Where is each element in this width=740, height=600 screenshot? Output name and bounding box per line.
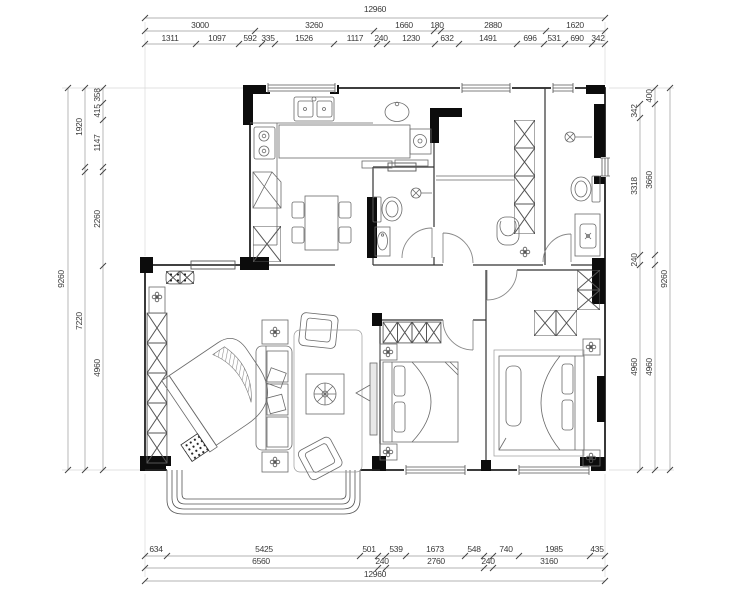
dim-label: 1097 [208,33,226,43]
bathroom1-fixtures [373,188,432,256]
dim-label: 1673 [426,544,444,554]
dim-label: 1660 [395,20,413,30]
dim-label: 4960 [92,359,102,377]
dim-label: 240 [481,556,494,566]
dim-label: 2880 [484,20,502,30]
dim-label: 2260 [92,210,102,228]
dim-label: 3318 [629,177,639,195]
dim-label: 3660 [644,171,654,189]
dim-label: 1985 [545,544,563,554]
dimension-lines [68,18,670,581]
dim-label: 240 [629,253,639,266]
grand-piano [145,331,283,463]
floor-plan-drawing [0,0,740,600]
furniture [145,97,600,481]
bedroom2-fixtures [494,270,600,466]
dim-label: 531 [547,33,560,43]
dim-label: 4960 [629,358,639,376]
dim-label: 3260 [305,20,323,30]
dim-label: 9260 [659,270,669,288]
dim-label: 501 [362,544,375,554]
dim-label: 1491 [479,33,497,43]
dim-label: 696 [523,33,536,43]
dim-label: 240 [375,556,388,566]
living-room-fixtures [145,271,377,481]
dim-label: 1620 [566,20,584,30]
dimension-ticks [65,15,673,584]
middle-room-fixtures [436,120,535,257]
dim-label: 2760 [427,556,445,566]
dim-label: 6560 [252,556,270,566]
dim-label: 1311 [161,33,178,43]
dim-label: 342 [591,33,604,43]
dim-label: 240 [374,33,387,43]
dim-label: 1147 [92,134,102,151]
dim-label: 12960 [364,4,386,14]
dim-label: 634 [149,544,162,554]
dim-label: 358 [92,88,102,101]
dim-label: 415 [92,104,102,117]
dim-label: 592 [243,33,256,43]
dim-label: 3160 [540,556,558,566]
dim-label: 1117 [347,33,363,43]
floor-plan-page: 12960 3000 3260 1660 180 2880 1620 1311 … [0,0,740,600]
dim-label: 1230 [402,33,420,43]
kitchen-fixtures [250,97,431,262]
dim-label: 1920 [74,118,84,136]
dim-label: 690 [570,33,583,43]
dim-label: 180 [430,20,443,30]
dim-label: 400 [644,89,654,102]
dim-label: 3000 [191,20,209,30]
dim-label: 1526 [295,33,313,43]
dim-label: 435 [590,544,603,554]
dim-label: 5425 [255,544,273,554]
dim-label: 632 [440,33,453,43]
dim-label: 4960 [644,358,654,376]
dim-label: 12960 [364,569,386,579]
dim-label: 342 [629,104,639,117]
bay-window [145,466,380,514]
dim-label: 7220 [74,312,84,330]
dim-label: 548 [467,544,480,554]
dim-label: 9260 [56,270,66,288]
dim-label: 539 [389,544,402,554]
bedroom1-fixtures [380,322,458,460]
dim-label: 740 [499,544,512,554]
extension-lines [62,22,674,577]
dim-label: 335 [261,33,274,43]
